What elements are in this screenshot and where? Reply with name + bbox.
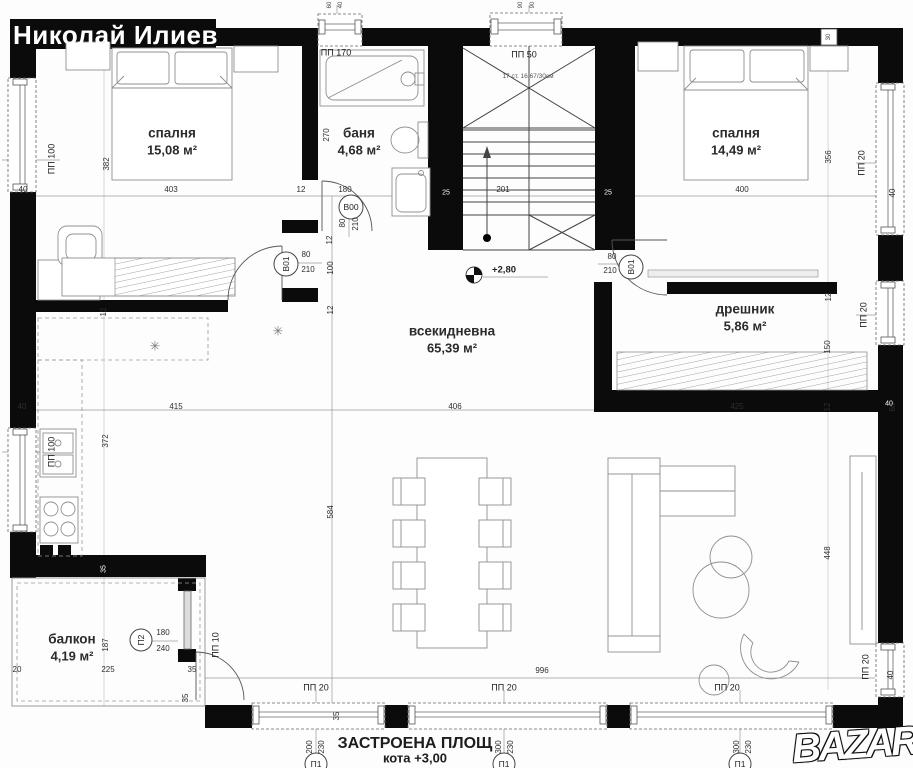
dimension-label: 90	[530, 2, 536, 9]
dimension-label: 35	[188, 666, 197, 674]
dimension-label: 210	[301, 266, 314, 274]
door-code-label: П1	[735, 760, 746, 768]
watermark-author: Николай Илиев	[13, 20, 218, 51]
room-area: 14,49 м²	[711, 143, 761, 158]
closet-wardrobe	[617, 352, 867, 390]
dimension-label: 60	[327, 2, 333, 9]
wall-dimension-label: 35	[101, 565, 108, 573]
door-code-label: П1	[499, 760, 510, 768]
window-code-label: ПП 10	[212, 632, 221, 657]
window-code-label: ПП 20	[714, 684, 739, 693]
dimension-label: 30	[826, 34, 832, 41]
kitchen-counter	[38, 318, 208, 360]
door-swing	[196, 652, 244, 700]
nightstand	[810, 46, 848, 71]
dimension-label: 12	[326, 236, 334, 245]
room-area: 65,39 м²	[427, 341, 477, 356]
window-code-label: ПП 20	[862, 654, 871, 679]
dimension-label: 300	[733, 740, 741, 753]
dimension-label: 372	[102, 434, 110, 447]
wall-dimension-label: 25	[604, 190, 612, 197]
window-code-label: ПП 100	[48, 144, 57, 174]
chair	[393, 604, 425, 631]
dimension-label: 201	[496, 186, 509, 194]
door-swing	[228, 246, 282, 300]
room-name: балкон	[48, 632, 95, 647]
chair	[393, 478, 425, 505]
room-area: 15,08 м²	[147, 143, 197, 158]
dimension-label: 382	[103, 157, 111, 170]
closet-rod	[648, 270, 818, 277]
dimension-label: 40	[18, 403, 27, 411]
dimension-label: 80	[302, 251, 311, 259]
dimension-label: 210	[352, 217, 360, 230]
dimension-label: 150	[824, 340, 832, 353]
dimension-label: 12	[297, 186, 306, 194]
dimension-label: 230	[318, 740, 326, 753]
ceiling-symbol: ✳	[273, 325, 284, 338]
door-code-label: B01	[627, 259, 636, 274]
level-mark-label: +2,80	[492, 265, 516, 275]
dimension-label: 187	[102, 638, 110, 651]
coffee-table	[693, 562, 749, 618]
dimension-label: 996	[535, 667, 548, 675]
bazar-logo: BAZAR	[791, 719, 913, 768]
window-code-label: ПП 20	[303, 684, 328, 693]
dimension-label: 300	[495, 740, 503, 753]
ceiling-symbol: ✳	[150, 340, 161, 353]
room-name: всекидневна	[409, 324, 495, 339]
dimension-label: 210	[603, 267, 616, 275]
door-code-label: B01	[282, 256, 291, 271]
stairs-note: 17 ст. 16,67/30см	[502, 74, 553, 81]
bathroom-sink	[391, 127, 419, 153]
window-code-label: ПП 20	[491, 684, 516, 693]
room-area: 5,86 м²	[724, 319, 767, 334]
dimension-label: 40	[887, 671, 895, 680]
floor-plan-drawing	[0, 0, 913, 768]
door-code-label: П1	[311, 760, 322, 768]
dimension-label: 425	[730, 403, 743, 411]
dimension-label: 12	[327, 306, 335, 315]
chair	[479, 520, 511, 547]
door-code-label: B00	[343, 203, 358, 212]
chair	[393, 562, 425, 589]
dimension-label: 400	[735, 186, 748, 194]
nightstand	[234, 46, 278, 72]
room-name: дрешник	[716, 302, 775, 317]
tv-cabinet	[850, 456, 876, 644]
dimension-label: 180	[156, 629, 169, 637]
chair	[393, 520, 425, 547]
window-code-label: ПП 20	[858, 150, 867, 175]
dimension-label: 356	[825, 150, 833, 163]
wall-dimension-label: 25	[442, 190, 450, 197]
dimension-label: 230	[507, 740, 515, 753]
dimension-label: 180	[338, 186, 351, 194]
chair	[479, 478, 511, 505]
dimension-label: 80	[339, 219, 347, 228]
room-area: 4,68 м²	[338, 143, 381, 158]
room-name: спалня	[148, 126, 196, 141]
dimension-label: 406	[448, 403, 461, 411]
room-name: спалня	[712, 126, 760, 141]
chair	[479, 562, 511, 589]
dimension-label: 35	[333, 712, 341, 721]
dimension-label: 20	[13, 666, 22, 674]
window-code-label: ПП 100	[48, 437, 57, 467]
dimension-label: 80	[608, 253, 617, 261]
level-mark	[466, 267, 482, 283]
nightstand	[638, 42, 678, 71]
dimension-label: 225	[101, 666, 114, 674]
dimension-label: 12	[825, 293, 833, 302]
dimension-label: 230	[745, 740, 753, 753]
dimension-label: 35	[182, 694, 190, 703]
dimension-label: 90	[518, 2, 524, 9]
sofa	[608, 458, 660, 474]
door-code-label: П2	[137, 635, 146, 646]
window-code-label: ПП 20	[860, 302, 869, 327]
dimension-label: 240	[156, 645, 169, 653]
dimension-label: 584	[327, 505, 335, 518]
dimension-label: 12	[824, 403, 832, 412]
built-area-title: ЗАСТРОЕНА ПЛОЩ	[338, 735, 493, 752]
wall-dimension-label: 40	[885, 401, 893, 408]
room-name: баня	[343, 126, 375, 141]
floor-plan-page: 4040312180201400403823562701210012124041…	[0, 0, 913, 768]
room-area: 4,19 м²	[51, 649, 94, 664]
dimension-label: 40	[19, 186, 28, 194]
dimension-label: 200	[306, 740, 314, 753]
dimension-label: 12	[100, 308, 108, 317]
dimension-label: 415	[169, 403, 182, 411]
window-code-label: ПП 50	[511, 51, 536, 60]
dining-table	[417, 458, 487, 648]
dimension-label: 40	[338, 2, 344, 9]
dimension-label: 448	[824, 546, 832, 559]
dimension-label: 100	[327, 261, 335, 274]
bathtub	[320, 50, 424, 106]
elevation-note: кота +3,00	[383, 751, 447, 766]
window-code-label: ПП 170	[321, 49, 351, 58]
chair	[479, 604, 511, 631]
dimension-label: 270	[323, 128, 331, 141]
dimension-label: 403	[164, 186, 177, 194]
dimension-label: 40	[889, 189, 897, 198]
